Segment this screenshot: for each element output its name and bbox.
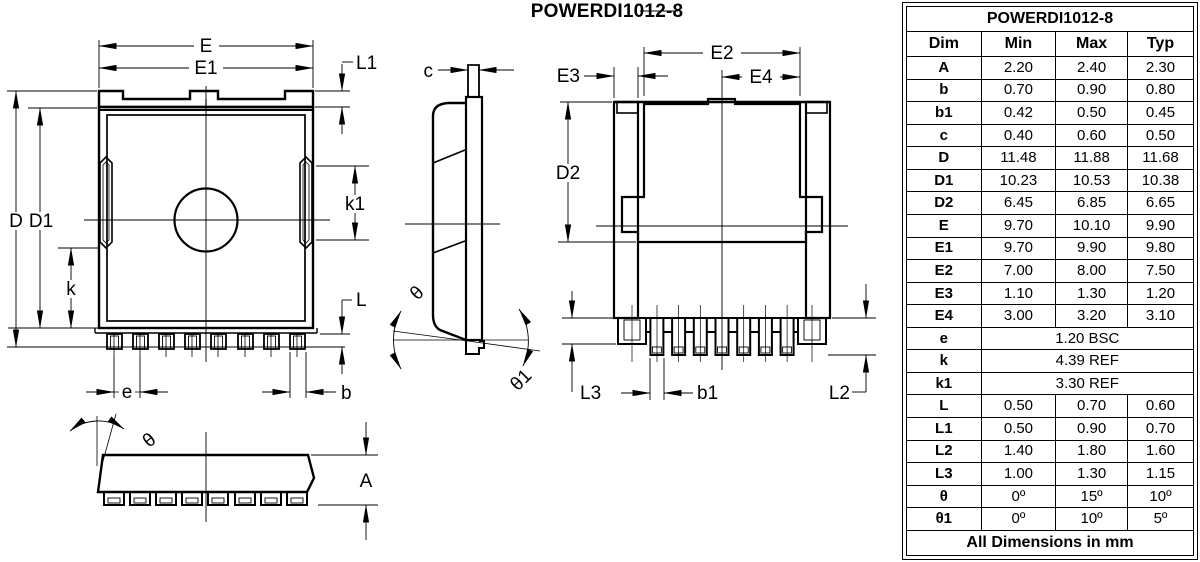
- dim-label-front-theta: θ: [139, 429, 161, 452]
- table-row-c: c0.400.600.50: [907, 124, 1194, 147]
- dim-label-E1: E1: [194, 58, 217, 79]
- bottom-view-drawing: E2 E3 E4 D2 L3 L2 b1: [551, 43, 876, 404]
- col-header-max: Max: [1056, 32, 1128, 57]
- col-header-typ: Typ: [1127, 32, 1193, 57]
- table-row-E4: E43.003.203.10: [907, 305, 1194, 328]
- table-row-b: b0.700.900.80: [907, 79, 1194, 102]
- table-row-theta1: θ10º10º5º: [907, 508, 1194, 531]
- table-row-E2: E27.008.007.50: [907, 260, 1194, 283]
- table-row-k: k4.39 REF: [907, 350, 1194, 373]
- table-row-L: L0.500.700.60: [907, 395, 1194, 418]
- dim-label-E: E: [200, 36, 213, 57]
- dimension-table-grid: POWERDI1012-8 Dim Min Max Typ A2.202.402…: [906, 6, 1194, 556]
- dim-label-L3: L3: [580, 383, 601, 404]
- side-view-drawing: c θ θ1: [393, 61, 540, 395]
- package-outline-drawings: E E1 L1 D D1 k k1 L e b: [0, 0, 910, 562]
- table-title: POWERDI1012-8: [907, 7, 1194, 32]
- dim-label-theta: θ: [406, 282, 428, 304]
- table-row-D: D11.4811.8811.68: [907, 147, 1194, 170]
- dim-label-b: b: [341, 383, 352, 404]
- table-row-D1: D110.2310.5310.38: [907, 169, 1194, 192]
- table-footer-row: All Dimensions in mm: [907, 531, 1194, 556]
- table-row-E3: E31.101.301.20: [907, 282, 1194, 305]
- dim-label-b1: b1: [697, 383, 718, 404]
- table-footer: All Dimensions in mm: [907, 531, 1194, 556]
- dim-label-theta1: θ1: [506, 365, 536, 395]
- table-row-E1: E19.709.909.80: [907, 237, 1194, 260]
- dim-label-D2: D2: [556, 163, 580, 184]
- dimension-table: POWERDI1012-8 Dim Min Max Typ A2.202.402…: [902, 2, 1198, 560]
- col-header-min: Min: [981, 32, 1056, 57]
- table-row-theta: θ0º15º10º: [907, 485, 1194, 508]
- dim-label-k: k: [66, 279, 76, 300]
- table-row-L3: L31.001.301.15: [907, 463, 1194, 486]
- dim-label-c: c: [424, 61, 434, 82]
- dim-label-E3: E3: [557, 66, 580, 87]
- top-view-drawing: E E1 L1 D D1 k k1 L e b: [6, 36, 377, 404]
- dim-label-A: A: [360, 471, 373, 492]
- dim-label-D1: D1: [29, 211, 53, 232]
- table-row-E: E9.7010.109.90: [907, 214, 1194, 237]
- table-row-L1: L10.500.900.70: [907, 418, 1194, 441]
- table-title-row: POWERDI1012-8: [907, 7, 1194, 32]
- table-row-L2: L21.401.801.60: [907, 440, 1194, 463]
- datasheet-page: POWERDI1012-8: [0, 0, 1200, 562]
- table-row-A: A2.202.402.30: [907, 57, 1194, 80]
- table-row-D2: D26.456.856.65: [907, 192, 1194, 215]
- dim-label-L: L: [356, 290, 367, 311]
- front-view-drawing: θ A: [70, 414, 378, 540]
- dim-label-k1: k1: [345, 194, 365, 215]
- table-header-row: Dim Min Max Typ: [907, 32, 1194, 57]
- col-header-dim: Dim: [907, 32, 982, 57]
- dim-label-e: e: [122, 382, 133, 403]
- dim-label-L2: L2: [829, 383, 850, 404]
- dim-label-L1: L1: [356, 53, 377, 74]
- dim-label-D: D: [9, 211, 23, 232]
- table-row-b1: b10.420.500.45: [907, 102, 1194, 125]
- table-row-k1: k13.30 REF: [907, 372, 1194, 395]
- dim-label-E4: E4: [749, 67, 773, 88]
- table-row-e: e1.20 BSC: [907, 327, 1194, 350]
- dim-label-E2: E2: [710, 43, 733, 64]
